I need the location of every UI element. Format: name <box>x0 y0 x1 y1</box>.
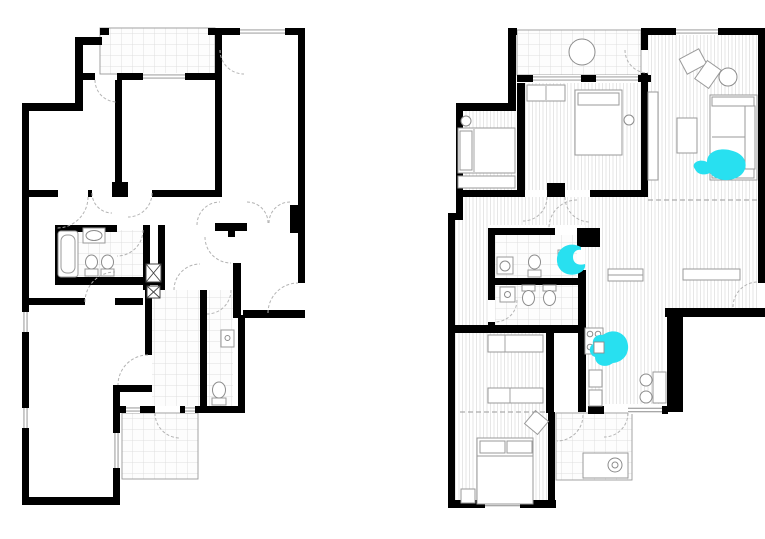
floor-plan-right-furnished <box>448 28 765 508</box>
wall <box>233 263 241 318</box>
wall <box>517 75 533 82</box>
wall <box>581 75 596 82</box>
window <box>596 75 638 82</box>
wall <box>215 28 222 197</box>
master-pillow-1 <box>480 441 505 453</box>
window <box>143 73 185 80</box>
sofa-armrest-top <box>712 97 754 106</box>
toilet1-bowl <box>529 255 541 269</box>
bed2-pillow <box>578 93 619 105</box>
wc-toilet-tank <box>212 398 226 405</box>
door-arc-vestibule <box>205 237 231 263</box>
wall <box>152 190 222 197</box>
wall <box>82 73 95 80</box>
door-arc-double-left <box>247 202 268 223</box>
bed1-pillow <box>460 131 472 170</box>
wall <box>22 332 29 408</box>
window <box>676 28 718 35</box>
wall <box>243 310 305 318</box>
floor-plans-page <box>0 0 765 539</box>
wall <box>115 298 143 305</box>
wall <box>22 298 85 305</box>
wall <box>448 213 455 507</box>
washbasin-bowl <box>86 231 102 241</box>
lamp-2 <box>624 115 634 125</box>
wardrobe-b <box>488 388 543 403</box>
console <box>683 269 740 280</box>
wall <box>88 190 92 197</box>
toilet1-tank <box>528 270 541 277</box>
lamp-1 <box>461 116 471 126</box>
wall <box>113 392 120 433</box>
window <box>22 312 29 332</box>
bathtub-inner <box>61 235 75 273</box>
wall <box>145 290 152 355</box>
wall <box>22 497 120 505</box>
wall <box>488 278 578 285</box>
wall <box>641 73 648 197</box>
hall-tile-floor <box>117 230 145 277</box>
wall <box>120 406 126 413</box>
window <box>628 406 662 414</box>
washbasin-2-drain <box>505 292 511 298</box>
wall <box>508 33 516 105</box>
wall <box>185 73 215 80</box>
door-arc-balcony <box>95 80 117 102</box>
toilet-tank <box>85 269 98 276</box>
stool-1 <box>640 374 652 386</box>
burner <box>587 331 593 337</box>
sofa-back <box>745 106 755 169</box>
door-arc-corridor <box>174 264 200 290</box>
wall <box>548 412 555 507</box>
washing-machine-drum <box>500 261 510 271</box>
wall <box>115 80 122 190</box>
wall <box>100 28 109 35</box>
wall <box>718 28 765 35</box>
nook-table <box>653 372 666 403</box>
door-arc-hall <box>197 202 220 225</box>
door-arc-room-bottom <box>118 355 148 385</box>
wall <box>667 308 683 412</box>
wall <box>588 406 604 414</box>
window <box>126 406 140 413</box>
wall <box>547 183 565 197</box>
wardrobe-a <box>488 335 543 352</box>
stove-knob-panel <box>594 342 604 353</box>
window <box>113 433 120 468</box>
wall <box>145 385 152 392</box>
wc-washbasin-drain <box>225 336 230 341</box>
wall <box>75 37 83 111</box>
wall <box>22 103 82 111</box>
door-arc-entrance <box>268 283 298 313</box>
wall <box>180 406 185 413</box>
window <box>22 408 29 428</box>
wall <box>298 28 305 283</box>
wall <box>488 228 555 235</box>
shaft <box>146 264 161 282</box>
wall <box>577 228 600 247</box>
shaft-small <box>147 286 160 298</box>
floor-plan-left-original <box>22 28 305 505</box>
balcony-floor <box>100 28 215 74</box>
wall <box>488 228 495 300</box>
door-arc-room1 <box>92 193 112 213</box>
wall <box>228 225 235 237</box>
master-pillow-2 <box>507 441 532 453</box>
sink-drain <box>612 462 618 468</box>
wall <box>448 325 580 333</box>
wall <box>28 190 58 197</box>
door-arc-double-right <box>269 202 290 223</box>
wall <box>456 103 516 111</box>
wall <box>285 28 305 35</box>
floor-plans-canvas <box>0 0 765 539</box>
window <box>533 75 581 82</box>
cabinet-2 <box>589 390 602 406</box>
wall <box>22 428 29 504</box>
wall <box>641 28 648 50</box>
wall <box>517 83 525 197</box>
bidet-tank <box>101 269 114 276</box>
wall <box>590 190 648 197</box>
wc-toilet-bowl <box>213 382 226 398</box>
wall <box>290 205 298 233</box>
bidet2-bowl <box>544 291 556 306</box>
wall <box>200 290 207 406</box>
wall <box>758 28 765 283</box>
window <box>240 28 285 35</box>
side-table <box>719 68 737 86</box>
highlight-blob-bathroom <box>557 245 585 275</box>
wall <box>546 333 554 413</box>
balcony-table <box>569 39 595 65</box>
corridor-tile-floor <box>152 290 200 406</box>
door-arc-room2 <box>128 193 152 217</box>
lower-balcony-floor <box>122 413 198 479</box>
dresser-1 <box>458 176 515 188</box>
wall <box>208 28 240 35</box>
corridor-floor <box>455 215 488 325</box>
wall <box>645 28 676 35</box>
cabinet-1 <box>589 370 602 387</box>
window <box>185 406 195 413</box>
door-arc-living-balcony <box>220 50 244 74</box>
wall <box>195 406 245 413</box>
wall <box>456 190 523 197</box>
wall <box>117 73 143 80</box>
door-arc-bedroom-left <box>57 197 88 228</box>
wall <box>112 182 128 197</box>
media-unit <box>648 92 658 180</box>
wall <box>22 103 29 312</box>
wall <box>238 315 245 413</box>
coffee-table <box>677 118 697 153</box>
wall <box>140 406 155 413</box>
toilet2-bowl <box>523 291 535 306</box>
stool-2 <box>640 391 652 403</box>
nightstand <box>461 489 475 503</box>
toilet-bowl <box>86 255 98 269</box>
wall <box>113 468 120 504</box>
bidet-bowl <box>102 255 114 269</box>
